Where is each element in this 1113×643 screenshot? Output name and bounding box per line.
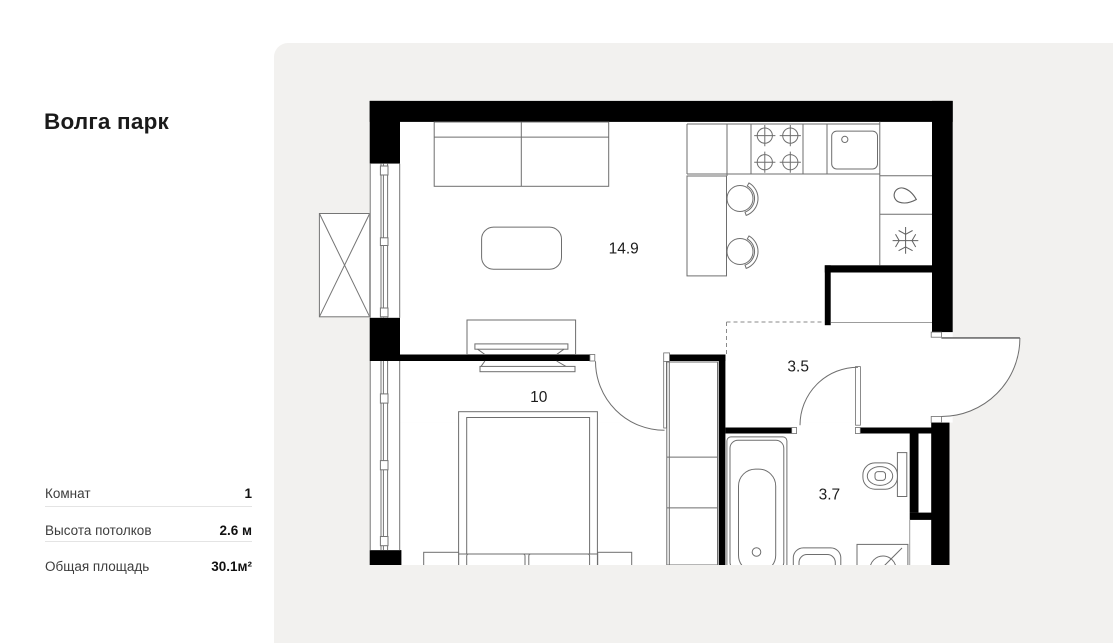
svg-text:14.9: 14.9 bbox=[609, 240, 639, 257]
svg-text:3.5: 3.5 bbox=[787, 358, 809, 375]
svg-text:10: 10 bbox=[530, 389, 548, 406]
svg-text:3.7: 3.7 bbox=[819, 486, 841, 503]
